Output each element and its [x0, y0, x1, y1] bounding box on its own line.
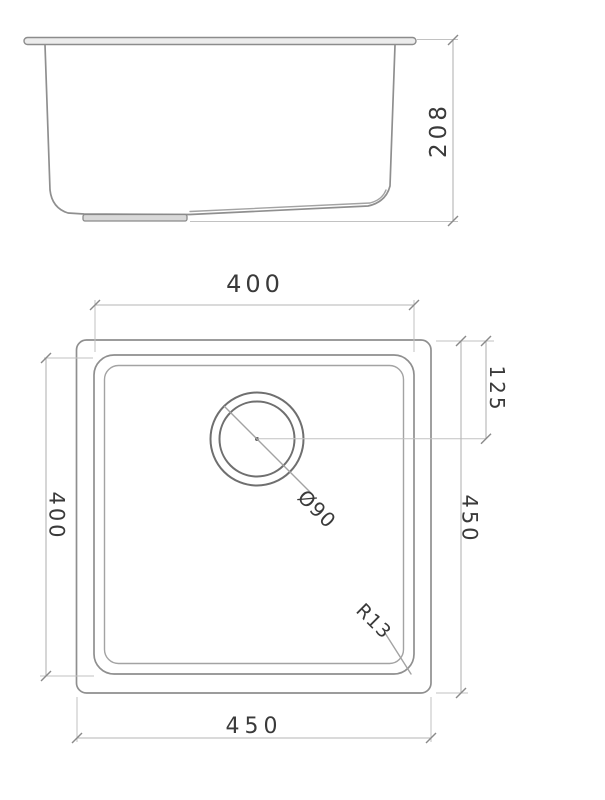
- sink-dimension-drawing: 208: [0, 0, 605, 800]
- plan-view: [77, 340, 487, 693]
- plan-drain-diameter-leader: [225, 407, 311, 493]
- dim-height-208: 208: [190, 35, 458, 226]
- dim-label-drain-diameter: Ø90: [293, 485, 341, 533]
- side-view-bowl-outline: [45, 45, 395, 215]
- dim-label-drain-offset-125: 125: [485, 365, 509, 412]
- dim-label-corner-radius: R13: [351, 599, 395, 643]
- dim-drain-offset-125: 125: [436, 336, 509, 444]
- dim-label-outer-depth-450: 450: [458, 494, 482, 543]
- side-view-drain-fitting: [83, 215, 187, 222]
- plan-corner-radius-leader: [385, 633, 411, 674]
- side-view-rim-flange: [24, 38, 416, 45]
- dim-label-height-208: 208: [426, 102, 452, 158]
- drawing-svg: 208: [0, 0, 605, 800]
- side-view-bottom-inner-line: [190, 190, 386, 212]
- dim-inner-depth-400: 400: [40, 353, 94, 681]
- dim-label-inner-width-400: 400: [226, 270, 284, 298]
- dim-label-inner-depth-400: 400: [45, 491, 69, 540]
- dim-outer-width-450: 450: [72, 697, 436, 743]
- side-view: [24, 38, 416, 222]
- dim-outer-depth-450: 450: [436, 336, 482, 698]
- dim-label-outer-width-450: 450: [226, 714, 283, 739]
